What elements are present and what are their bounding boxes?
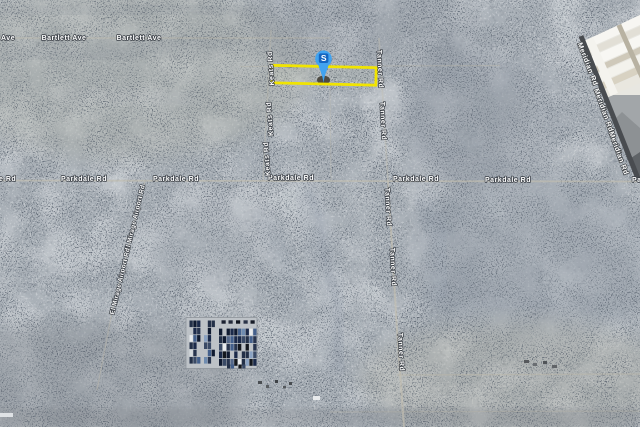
svg-text:Parkdale Rd: Parkdale Rd [485,177,531,184]
svg-text:e Rd: e Rd [0,176,16,183]
svg-text:Parkdale Rd: Parkdale Rd [632,177,640,184]
svg-text:Ave: Ave [1,35,15,42]
svg-text:Parkdale Rd: Parkdale Rd [393,176,439,183]
svg-text:Parkdale Rd: Parkdale Rd [153,176,199,183]
svg-text:S: S [321,53,327,63]
svg-text:Parkdale Rd: Parkdale Rd [61,176,107,183]
svg-text:Parkdale Rd: Parkdale Rd [268,175,314,182]
svg-text:Bartlett Ave: Bartlett Ave [42,35,87,42]
svg-text:Bartlett Ave: Bartlett Ave [117,35,162,42]
